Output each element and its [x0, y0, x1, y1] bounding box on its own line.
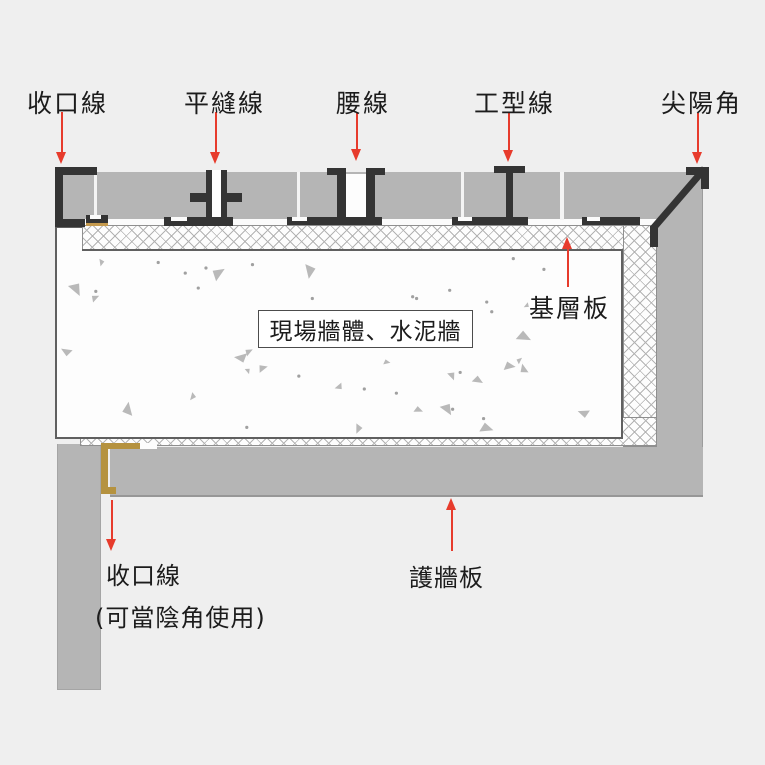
concrete-wall-left-step — [55, 226, 82, 251]
label-closing-line: 收口線 — [27, 84, 108, 120]
label-waist-line: 腰線 — [336, 84, 390, 120]
wall-section-diagram: 現場牆體、水泥牆 — [0, 0, 765, 765]
wall-body-label: 現場牆體、水泥牆 — [270, 312, 462, 346]
label-sharp-corner: 尖陽角 — [661, 84, 742, 120]
label-i-type-line: 工型線 — [474, 84, 555, 120]
label-wall-panel: 護牆板 — [409, 558, 484, 593]
wall-body-label-box: 現場牆體、水泥牆 — [258, 310, 473, 348]
panel-seam — [94, 172, 97, 219]
bottom-wall-panel — [110, 447, 703, 497]
panel-seam — [461, 172, 464, 219]
left-vertical-wall-panel — [57, 444, 101, 690]
base-board-hatch-right — [623, 225, 657, 447]
label-bottom-closing-line: 收口線 — [106, 556, 181, 591]
label-base-board: 基層板 — [529, 289, 610, 325]
gasket-strip — [86, 223, 108, 226]
panel-seam — [297, 172, 300, 219]
label-flat-seam-line: 平縫線 — [184, 84, 265, 120]
panel-seam — [560, 172, 564, 220]
top-wall-panel — [63, 172, 703, 220]
label-bottom-closing-note: (可當陰角使用) — [95, 598, 266, 633]
